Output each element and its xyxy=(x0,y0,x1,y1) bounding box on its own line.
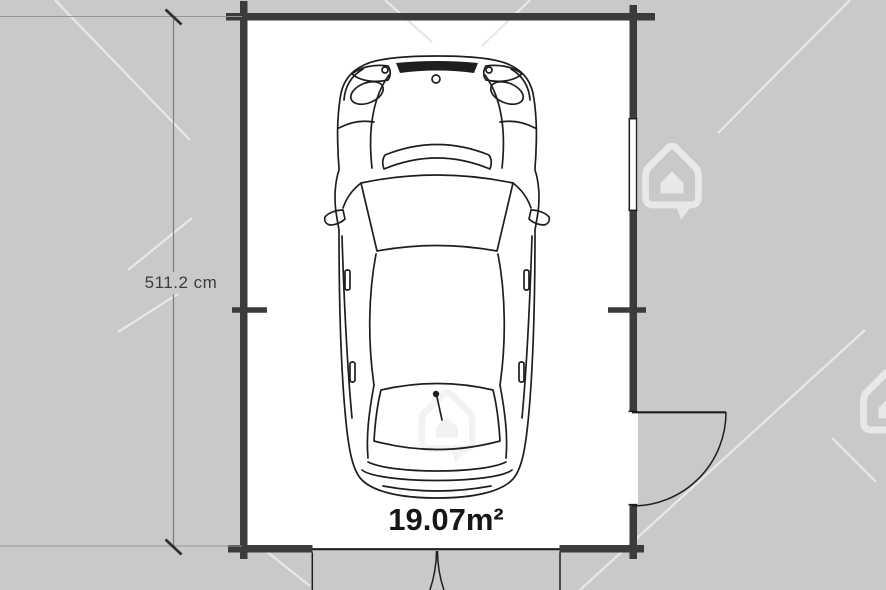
floorplan-canvas: 511.2 cm 19.07m² xyxy=(0,0,886,590)
rear-wiper xyxy=(433,391,439,397)
area-label: 19.07m² xyxy=(388,502,503,538)
dimension-label: 511.2 cm xyxy=(141,272,222,294)
